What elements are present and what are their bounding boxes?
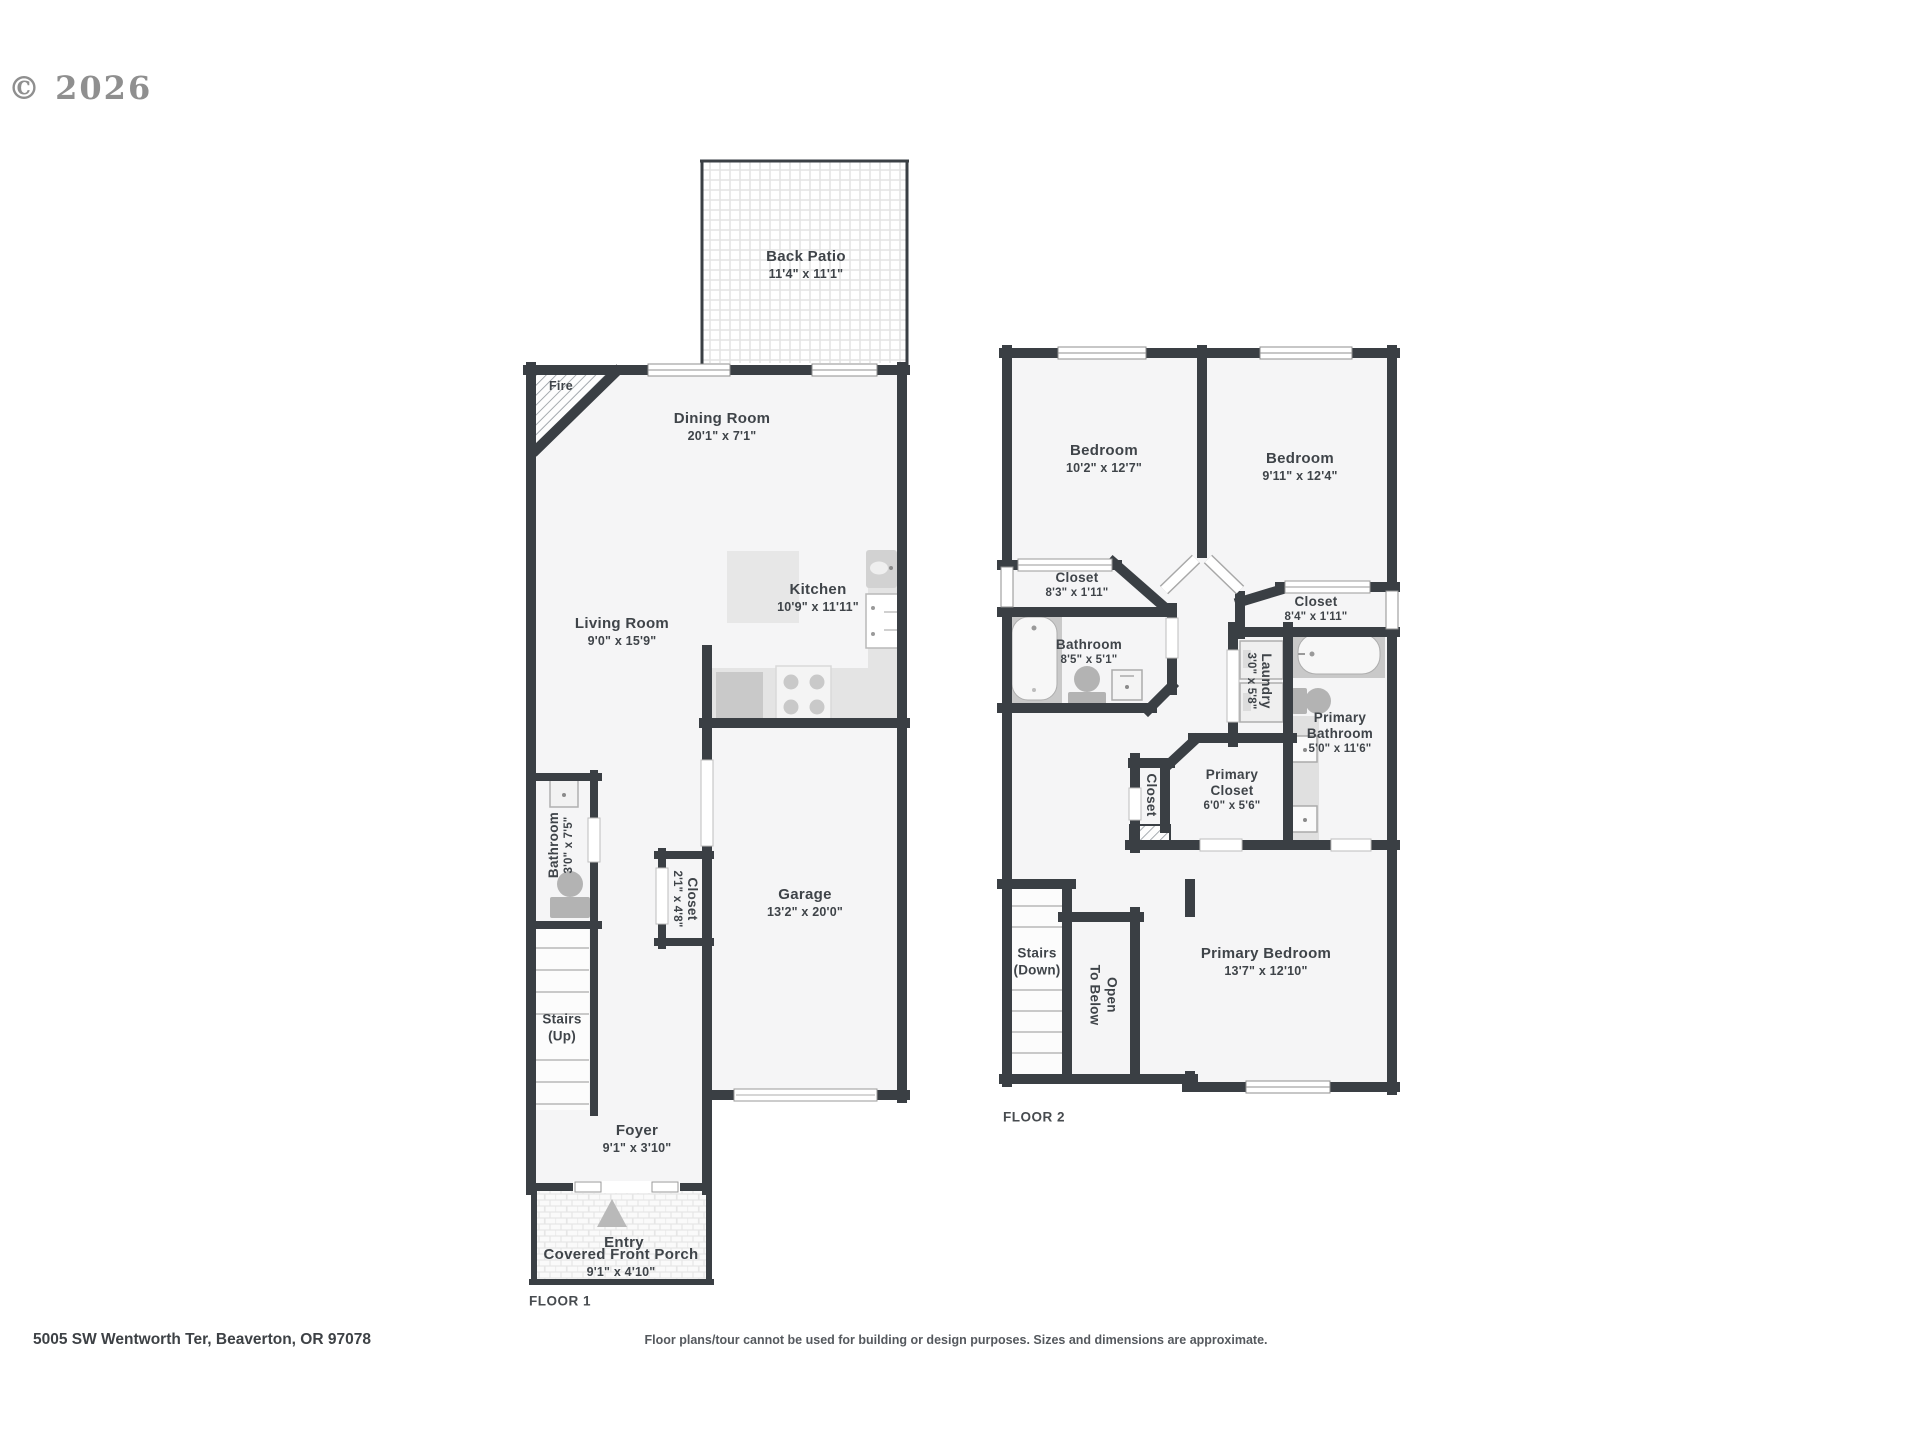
disclaimer-text: Floor plans/tour cannot be used for buil… <box>644 1333 1267 1347</box>
closet-left-label: Closet 8'3" x 1'11" <box>1046 570 1109 600</box>
open-below-label: Open To Below <box>1087 965 1120 1026</box>
sidelight-window <box>575 1182 601 1192</box>
back-patio-label: Back Patio 11'4" x 11'1" <box>766 248 846 282</box>
closet-small-label: Closet <box>1143 773 1159 816</box>
dining-room-label: Dining Room 20'1" x 7'1" <box>674 410 771 444</box>
garage-label: Garage 13'2" x 20'0" <box>767 886 843 920</box>
stairs-down-label: Stairs (Down) <box>1014 946 1061 979</box>
fridge-icon <box>866 594 898 648</box>
closet-right-label: Closet 8'4" x 1'11" <box>1285 594 1348 624</box>
porch-label: Covered Front Porch 9'1" x 4'10" <box>544 1246 699 1280</box>
bathroom-label-2: Bathroom 8'5" x 5'1" <box>1056 637 1122 667</box>
address-text: 5005 SW Wentworth Ter, Beaverton, OR 970… <box>33 1331 371 1349</box>
bedroom-left-label: Bedroom 10'2" x 12'7" <box>1066 442 1142 476</box>
fireplace-label: Fire <box>549 377 573 395</box>
floor2-tag: FLOOR 2 <box>1003 1110 1065 1125</box>
primary-closet-label: Primary Closet 6'0" x 5'6" <box>1192 767 1272 813</box>
floor-plan-canvas <box>0 0 1920 1440</box>
bathtub-icon <box>1007 612 1062 705</box>
kitchen-sink-icon <box>866 550 897 588</box>
bedroom-right-label: Bedroom 9'11" x 12'4" <box>1262 450 1337 484</box>
kitchen-label: Kitchen 10'9" x 11'11" <box>777 581 859 615</box>
bathroom-label: Bathroom 3'0" x 7'5" <box>546 812 576 878</box>
floor-plan-page: © 2026 5005 SW Wentworth Ter, Beaverton,… <box>0 0 1920 1440</box>
primary-bathroom-label: Primary Bathroom 5'0" x 11'6" <box>1288 710 1392 756</box>
stairs-up-label: Stairs (Up) <box>542 1012 581 1045</box>
stove-icon <box>776 666 831 722</box>
sink-icon <box>1112 670 1142 700</box>
stairs-down-treads <box>1012 888 1063 1074</box>
bathroom-sink-icon <box>550 780 578 807</box>
floor1-tag: FLOOR 1 <box>529 1294 591 1309</box>
foyer-label: Foyer 9'1" x 3'10" <box>603 1122 672 1156</box>
laundry-label: Laundry 3'0" x 5'8" <box>1244 653 1274 710</box>
bathtub-icon <box>1293 630 1385 678</box>
living-room-label: Living Room 9'0" x 15'9" <box>575 615 669 649</box>
closet-label: Closet 2'1" x 4'8" <box>670 871 700 928</box>
dishwasher-icon <box>716 672 763 719</box>
primary-bedroom-label: Primary Bedroom 13'7" x 12'10" <box>1201 945 1331 979</box>
copyright-watermark: © 2026 <box>8 69 152 107</box>
floor1-plan <box>528 160 909 1282</box>
sidelight-window <box>652 1182 678 1192</box>
